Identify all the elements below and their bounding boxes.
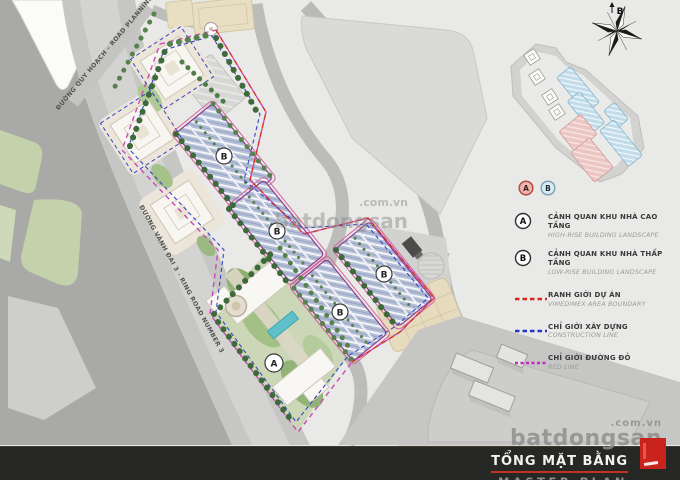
legend-item-highrise: A CẢNH QUAN KHU NHÀ CAO TẦNG HIGH-RISE B… (514, 212, 674, 240)
logo-mark (644, 461, 658, 466)
construction-dash-icon (514, 327, 548, 335)
legend-label-en: VIMEDIMEX AREA BOUNDARY (548, 301, 646, 309)
svg-text:.com.vn: .com.vn (359, 196, 408, 209)
legend-label-en: LOW-RISE BUILDING LANDSCAPE (548, 269, 674, 277)
legend-item-lowrise: B CẢNH QUAN KHU NHÀ THẤP TẦNG LOW-RISE B… (514, 249, 674, 277)
zone-label-a: A (265, 354, 283, 372)
footer-title: TỔNG MẶT BẰNG MASTER PLAN (491, 450, 628, 480)
compass-north-label: B (617, 7, 624, 17)
legend-label-en: CONSTRUCTION LINE (548, 332, 628, 340)
zone-label-b: B (216, 148, 232, 164)
svg-text:B: B (337, 309, 344, 319)
svg-text:B: B (381, 271, 388, 281)
svg-text:B: B (545, 184, 551, 193)
svg-text:batdongsan: batdongsan (274, 209, 408, 233)
zone-b-swatch-icon: B (540, 180, 556, 196)
redline-dash-icon (514, 359, 548, 367)
svg-text:A: A (523, 184, 529, 193)
zone-label-b: B (376, 266, 392, 282)
legend-a-circle-icon: A (514, 212, 532, 230)
legend-label-vn: RANH GIỚI DỰ ÁN (548, 291, 646, 300)
legend-item-construction: CHỈ GIỚI XÂY DỰNG CONSTRUCTION LINE (514, 322, 674, 341)
boundary-dash-icon (514, 295, 548, 303)
legend-label-vn: CẢNH QUAN KHU NHÀ CAO TẦNG (548, 213, 674, 232)
legend: A B A CẢNH QUAN KHU NHÀ CAO TẦNG HIGH-RI… (514, 180, 674, 385)
zone-label-b: B (332, 304, 348, 320)
legend-label-vn: CẢNH QUAN KHU NHÀ THẤP TẦNG (548, 250, 674, 269)
zone-a-swatch-icon: A (518, 180, 534, 196)
logo-mark (643, 443, 646, 459)
svg-text:A: A (520, 217, 527, 227)
legend-label-en: RED LINE (548, 364, 631, 372)
legend-item-redline: CHỈ GIỚI ĐƯỜNG ĐỎ RED LINE (514, 353, 674, 372)
legend-label-vn: CHỈ GIỚI XÂY DỰNG (548, 323, 628, 332)
legend-item-boundary: RANH GIỚI DỰ ÁN VIMEDIMEX AREA BOUNDARY (514, 290, 674, 309)
svg-text:A: A (271, 360, 278, 370)
legend-zone-swatches: A B (518, 180, 674, 196)
legend-label-en: HIGH-RISE BUILDING LANDSCAPE (548, 232, 674, 240)
svg-text:B: B (520, 254, 526, 264)
round-parking (418, 253, 444, 279)
plan-title-vn: TỔNG MẶT BẰNG (491, 454, 628, 473)
legend-b-circle-icon: B (514, 249, 532, 267)
svg-text:B: B (221, 153, 228, 163)
plan-title-en: MASTER PLAN (491, 475, 628, 480)
legend-label-vn: CHỈ GIỚI ĐƯỜNG ĐỎ (548, 354, 631, 363)
batdongsan-logo (640, 438, 666, 469)
master-plan-screenshot: ĐƯỜNG QUY HOẠCH - ROAD PLANNING ĐƯỜNG VÀ… (0, 0, 680, 480)
